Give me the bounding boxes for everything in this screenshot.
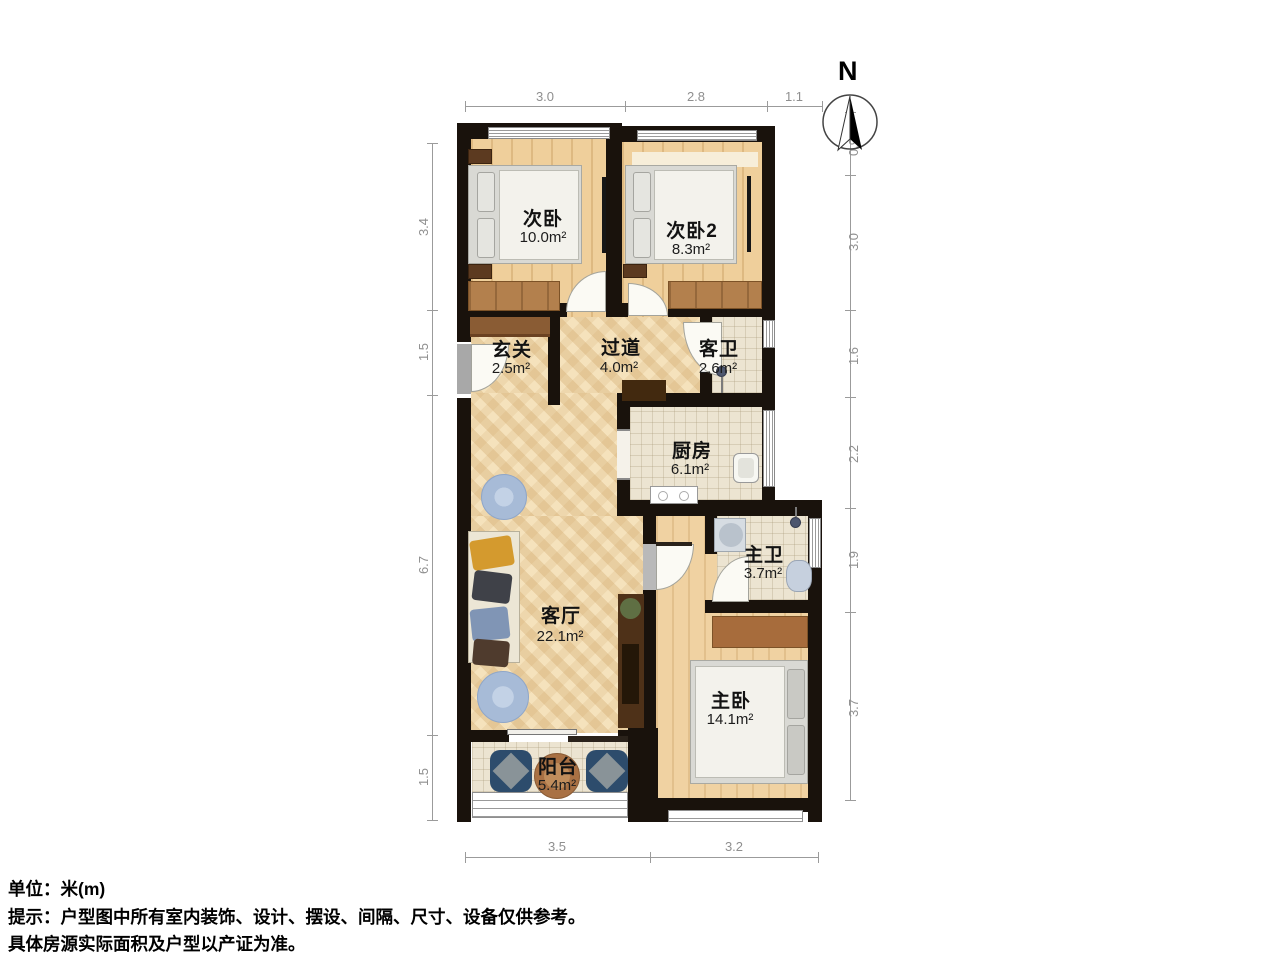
dim-right-4: 2.2 bbox=[846, 432, 862, 476]
bedroom2nd-nightstand-bottom bbox=[468, 264, 492, 279]
tick bbox=[427, 735, 438, 736]
wall-mid-b bbox=[606, 303, 628, 317]
bedroom2nd2-nightstand bbox=[623, 264, 647, 278]
compass-north-label: N bbox=[838, 56, 858, 87]
tick bbox=[767, 101, 768, 112]
tv bbox=[622, 644, 639, 704]
shoe-cabinet bbox=[470, 317, 550, 337]
tick bbox=[818, 852, 819, 863]
room-label-entry: 玄关 bbox=[462, 335, 562, 362]
tick bbox=[625, 101, 626, 112]
bedroom2nd2-sliding-track bbox=[747, 176, 751, 252]
dim-top-3: 1.1 bbox=[772, 89, 816, 105]
tick bbox=[427, 395, 438, 396]
tick bbox=[845, 175, 856, 176]
balcony-sliding-door-panel1 bbox=[507, 729, 577, 735]
room-label-kitchen: 厨房 bbox=[642, 436, 742, 463]
pillow bbox=[787, 725, 805, 775]
tick bbox=[427, 310, 438, 311]
dim-left-2: 1.5 bbox=[416, 330, 432, 374]
dim-left-3: 6.7 bbox=[416, 543, 432, 587]
room-label-bedroom2nd: 次卧 bbox=[493, 204, 593, 231]
room-label-bedroom2nd2: 次卧2 bbox=[642, 216, 742, 243]
footer-tip: 提示：户型图中所有室内装饰、设计、摆设、间隔、尺寸、设备仅供参考。 bbox=[8, 904, 586, 929]
wall-kitchen-bottom bbox=[617, 500, 822, 516]
kitchen-opening bbox=[617, 429, 630, 480]
tick bbox=[427, 143, 438, 144]
room-area-guest-bath: 2.6m² bbox=[668, 360, 768, 377]
dimline-left bbox=[432, 143, 433, 820]
dim-top-1: 3.0 bbox=[523, 89, 567, 105]
burner bbox=[658, 491, 668, 501]
dim-bottom-2: 3.2 bbox=[712, 839, 756, 855]
dim-bottom-1: 3.5 bbox=[535, 839, 579, 855]
bedroom2nd-window bbox=[488, 127, 610, 139]
master-suite-door-leaf bbox=[656, 542, 692, 546]
footer-note: 具体房源实际面积及户型以产证为准。 bbox=[8, 931, 306, 956]
room-area-kitchen: 6.1m² bbox=[640, 461, 740, 478]
pillow bbox=[633, 172, 651, 212]
bedroom2nd2-wardrobe bbox=[668, 281, 762, 309]
master-bath-shower-icon bbox=[790, 517, 801, 528]
tick bbox=[427, 820, 438, 821]
room-label-hallway: 过道 bbox=[571, 333, 671, 360]
tick bbox=[845, 508, 856, 509]
compass-rose bbox=[816, 86, 886, 166]
master-bath-shower-stem bbox=[795, 507, 797, 517]
kitchen-window bbox=[763, 410, 775, 487]
bedroom2nd2-window bbox=[637, 130, 757, 141]
room-label-living: 客厅 bbox=[511, 601, 611, 628]
round-rug-bottom bbox=[477, 671, 529, 723]
sofa-pillow-dark bbox=[471, 570, 512, 604]
tick bbox=[845, 612, 856, 613]
room-area-hallway: 4.0m² bbox=[569, 359, 669, 376]
master-bedroom-window bbox=[668, 810, 803, 822]
room-area-master-bed: 14.1m² bbox=[680, 711, 780, 728]
footer-unit: 单位：米(m) bbox=[8, 876, 105, 901]
room-label-guest-bath: 客卫 bbox=[669, 334, 769, 361]
dimline-bottom bbox=[465, 857, 818, 858]
bedroom2nd-sliding-track bbox=[602, 177, 606, 253]
dim-right-5: 1.9 bbox=[846, 538, 862, 582]
bedroom2nd-nightstand-top bbox=[468, 149, 492, 164]
tick bbox=[650, 852, 651, 863]
sofa-pillow-blue bbox=[469, 606, 510, 642]
wall-living-master-b bbox=[643, 590, 656, 735]
wall-balcony-top-a bbox=[457, 730, 509, 742]
dimline-top bbox=[465, 106, 822, 107]
room-area-bedroom2nd: 10.0m² bbox=[493, 229, 593, 246]
sofa-pillow-brown bbox=[472, 638, 510, 667]
floorplan: 次卧 10.0m² 次卧2 8.3m² 玄关 2.5m² 过道 4.0m² 客卫… bbox=[0, 0, 1280, 960]
dim-right-2: 3.0 bbox=[846, 220, 862, 264]
tick bbox=[845, 310, 856, 311]
tick bbox=[845, 800, 856, 801]
tick bbox=[465, 852, 466, 863]
room-area-living: 22.1m² bbox=[510, 628, 610, 645]
tick bbox=[845, 397, 856, 398]
master-suite-opening bbox=[643, 544, 656, 590]
room-label-master-bath: 主卫 bbox=[714, 540, 814, 567]
compass: N bbox=[816, 56, 886, 166]
dim-right-3: 1.6 bbox=[846, 334, 862, 378]
room-area-bedroom2nd2: 8.3m² bbox=[641, 241, 741, 258]
wall-bedroom-divider bbox=[606, 123, 622, 317]
wall-balcony-master-block bbox=[628, 728, 658, 822]
room-label-balcony: 阳台 bbox=[508, 752, 608, 779]
wall-living-master-a bbox=[643, 516, 656, 544]
room-label-master-bed: 主卧 bbox=[681, 686, 781, 713]
master-wardrobe bbox=[712, 616, 808, 648]
pillow bbox=[787, 669, 805, 719]
dim-right-6: 3.7 bbox=[846, 686, 862, 730]
balcony-sliding-door-panel2 bbox=[568, 736, 630, 742]
tv-cabinet bbox=[618, 594, 644, 728]
dim-top-2: 2.8 bbox=[674, 89, 718, 105]
room-area-entry: 2.5m² bbox=[461, 360, 561, 377]
room-area-balcony: 5.4m² bbox=[507, 777, 607, 794]
dim-left-1: 3.4 bbox=[416, 205, 432, 249]
burner bbox=[679, 491, 689, 501]
hallway-cabinet bbox=[622, 380, 666, 401]
round-rug-top bbox=[481, 474, 527, 520]
kitchen-stove bbox=[650, 486, 698, 504]
bedroom2nd-wardrobe bbox=[468, 281, 560, 311]
room-area-master-bath: 3.7m² bbox=[713, 565, 813, 582]
tick bbox=[465, 101, 466, 112]
dim-left-4: 1.5 bbox=[416, 755, 432, 799]
guest-bath-shower-stem bbox=[721, 377, 723, 393]
plant bbox=[620, 598, 641, 619]
